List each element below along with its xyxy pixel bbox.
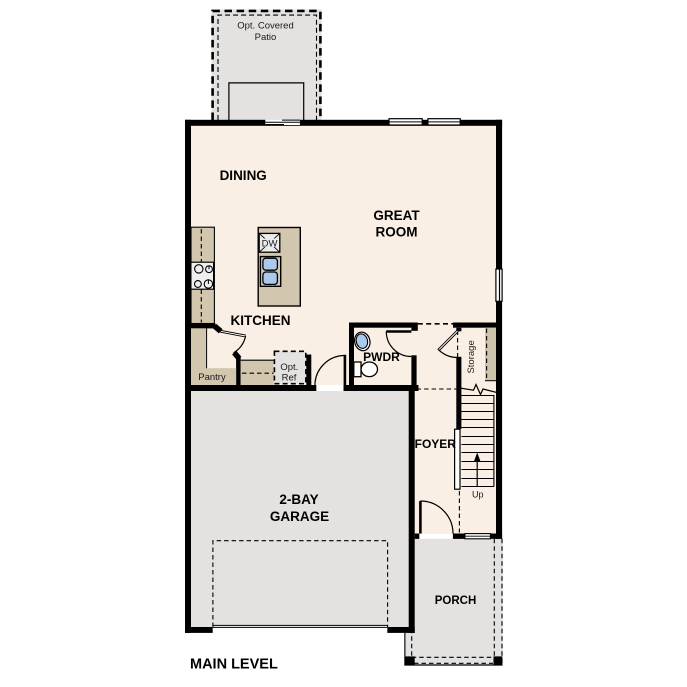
svg-text:Opt.: Opt. [280,362,298,373]
svg-text:Patio: Patio [255,32,277,43]
svg-text:FOYER: FOYER [415,437,457,451]
svg-text:Pantry: Pantry [198,372,226,383]
svg-text:Ref: Ref [282,373,297,384]
svg-text:GREAT: GREAT [373,208,420,223]
svg-text:2-BAY: 2-BAY [279,492,318,507]
svg-text:ROOM: ROOM [376,225,418,240]
svg-text:DINING: DINING [220,168,267,183]
svg-text:DW: DW [262,238,278,249]
svg-text:Storage: Storage [466,340,477,373]
svg-text:MAIN LEVEL: MAIN LEVEL [190,656,278,672]
svg-text:Up: Up [472,490,484,500]
svg-text:KITCHEN: KITCHEN [231,313,291,328]
svg-text:PORCH: PORCH [435,595,477,607]
svg-text:Opt. Covered: Opt. Covered [237,21,294,32]
svg-text:GARAGE: GARAGE [270,509,329,524]
